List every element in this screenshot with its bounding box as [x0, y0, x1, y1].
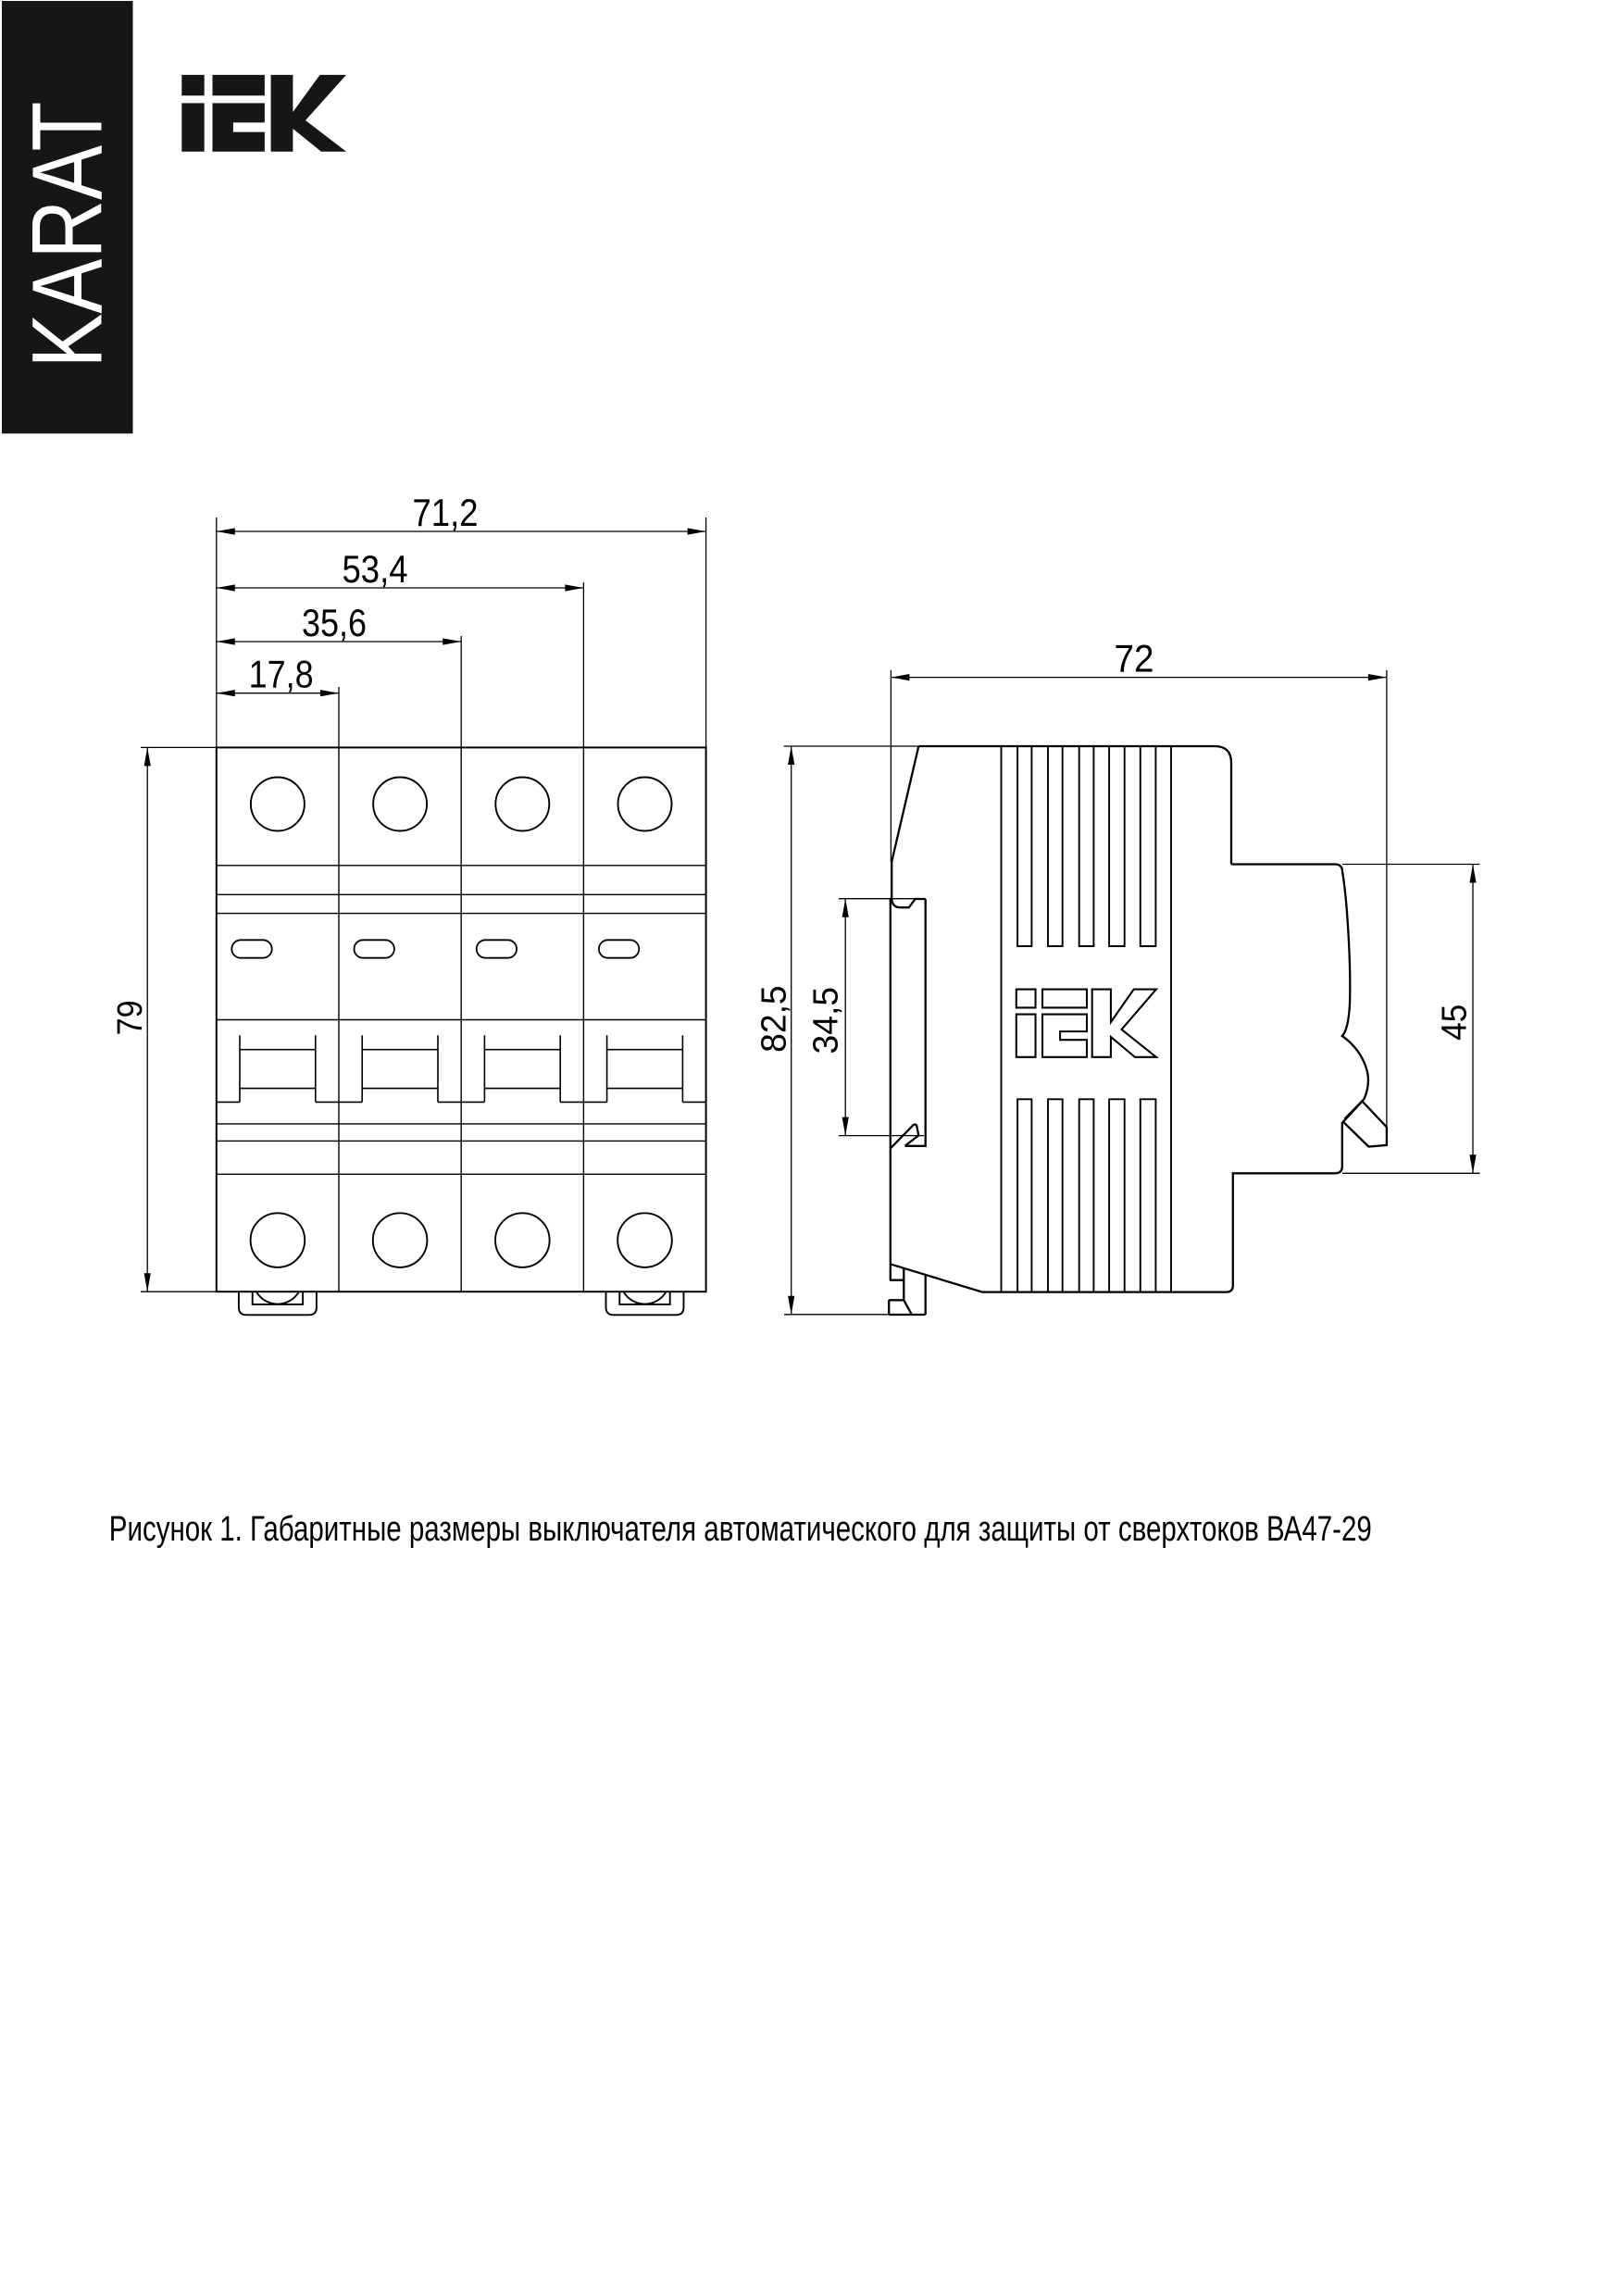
svg-text:Рисунок 1. Габаритные размеры: Рисунок 1. Габаритные размеры выключател…: [109, 1509, 1372, 1549]
svg-text:45: 45: [1436, 1004, 1475, 1041]
svg-text:71,2: 71,2: [413, 491, 479, 534]
svg-text:35,6: 35,6: [302, 601, 367, 644]
svg-text:72: 72: [1115, 637, 1154, 680]
svg-text:79: 79: [111, 1000, 150, 1035]
svg-text:KARAT: KARAT: [11, 102, 123, 368]
svg-text:17,8: 17,8: [249, 653, 314, 696]
svg-text:34,5: 34,5: [807, 987, 846, 1054]
svg-text:53,4: 53,4: [343, 547, 408, 591]
svg-text:82,5: 82,5: [755, 985, 794, 1053]
